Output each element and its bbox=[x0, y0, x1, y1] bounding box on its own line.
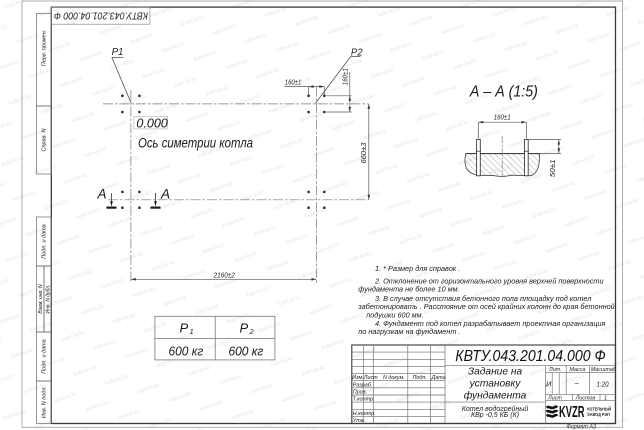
svg-text:600 кг: 600 кг bbox=[169, 345, 204, 359]
svg-text:Задание на: Задание на bbox=[468, 367, 523, 378]
svg-text:Справ. N: Справ. N bbox=[42, 128, 48, 151]
svg-text:660±3: 660±3 bbox=[359, 142, 368, 164]
svg-text:–: – bbox=[574, 378, 580, 387]
svg-text:КВр -0,5 КБ (К): КВр -0,5 КБ (К) bbox=[471, 412, 519, 419]
svg-text:фундамента не более 10 мм.: фундамента не более 10 мм. bbox=[358, 285, 459, 294]
svg-text:1:20: 1:20 bbox=[597, 379, 610, 388]
svg-text:160±1: 160±1 bbox=[494, 114, 511, 121]
svg-text:А: А bbox=[97, 187, 107, 202]
svg-text:Изм.Лист: Изм.Лист bbox=[352, 375, 378, 381]
svg-text:P: P bbox=[180, 321, 189, 336]
svg-text:Т.контр.: Т.контр. bbox=[353, 397, 375, 403]
svg-text:А: А bbox=[160, 187, 170, 202]
svg-text:50±1: 50±1 bbox=[548, 159, 557, 177]
svg-text:Разраб.: Разраб. bbox=[353, 382, 373, 388]
svg-text:0.000: 0.000 bbox=[136, 116, 167, 130]
svg-text:Подп.: Подп. bbox=[413, 375, 427, 381]
svg-text:Лист: Лист bbox=[547, 395, 562, 401]
svg-text:подушки 600 мм.: подушки 600 мм. bbox=[366, 310, 424, 319]
svg-text:по нагрузкам на фундамент .: по нагрузкам на фундамент . bbox=[358, 327, 460, 336]
svg-text:P1: P1 bbox=[112, 46, 124, 58]
svg-text:ЗАВОД РЭП: ЗАВОД РЭП bbox=[587, 412, 610, 417]
svg-text:КОТЕЛЬНЫЙ: КОТЕЛЬНЫЙ bbox=[587, 405, 611, 412]
svg-text:Взам. инв. N: Взам. инв. N bbox=[38, 284, 44, 314]
svg-text:160±1: 160±1 bbox=[285, 79, 302, 86]
svg-text:600 кг: 600 кг bbox=[229, 345, 264, 359]
svg-text:Инв. N дубл.: Инв. N дубл. bbox=[46, 285, 52, 314]
svg-text:Дата: Дата bbox=[431, 375, 446, 381]
svg-text:КВТУ.043.201.04.000 Ф: КВТУ.043.201.04.000 Ф bbox=[455, 348, 606, 365]
svg-text:P: P bbox=[240, 321, 249, 336]
svg-text:КВТУ.043.201.04.000 Ф: КВТУ.043.201.04.000 Ф bbox=[54, 10, 148, 21]
svg-text:2: 2 bbox=[249, 327, 255, 336]
svg-text:Пров.: Пров. bbox=[353, 390, 367, 396]
svg-text:N докум.: N докум. bbox=[383, 375, 405, 381]
svg-text:Масса: Масса bbox=[570, 367, 586, 373]
svg-text:И: И bbox=[546, 379, 552, 388]
svg-text:Н.контр.: Н.контр. bbox=[353, 411, 376, 417]
svg-text:1: 1 bbox=[604, 395, 607, 401]
svg-text:Ось симетрии котла: Ось симетрии котла bbox=[138, 136, 253, 151]
svg-text:Масштаб: Масштаб bbox=[591, 367, 617, 373]
svg-text:Формат А3: Формат А3 bbox=[567, 424, 597, 430]
svg-text:Подп. и дата: Подп. и дата bbox=[42, 339, 48, 373]
svg-text:Лит.: Лит. bbox=[548, 367, 562, 373]
svg-text:установку: установку bbox=[469, 378, 522, 389]
svg-text:фундамента: фундамента bbox=[464, 389, 527, 401]
svg-text:1. * Размер для справок .: 1. * Размер для справок . bbox=[375, 264, 460, 273]
svg-text:160±1: 160±1 bbox=[341, 68, 350, 85]
svg-text:Перв. примен.: Перв. примен. bbox=[42, 30, 48, 67]
svg-text:Подп. и дата: Подп. и дата bbox=[42, 224, 48, 258]
svg-text:Листов: Листов bbox=[575, 395, 596, 401]
svg-text:А – А (1:5): А – А (1:5) bbox=[469, 83, 538, 100]
svg-text:KVZR: KVZR bbox=[559, 404, 585, 421]
svg-text:2160±2: 2160±2 bbox=[213, 273, 236, 280]
svg-text:Утв.: Утв. bbox=[352, 418, 365, 424]
svg-text:1: 1 bbox=[190, 327, 194, 336]
svg-text:Инв. N подл.: Инв. N подл. bbox=[42, 386, 48, 418]
